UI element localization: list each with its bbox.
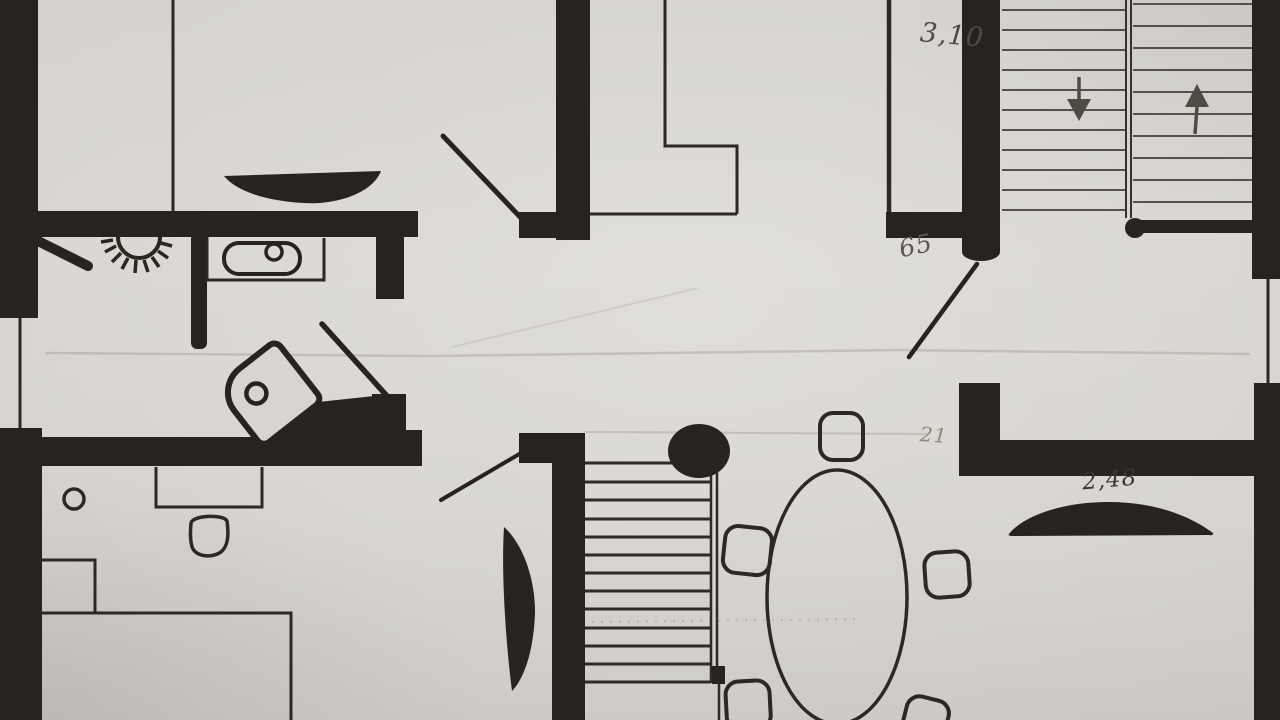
wardrobe-icon <box>503 527 535 691</box>
dimension-sideboard-length: 2,48 <box>1081 465 1138 496</box>
wall-right-lower <box>1254 383 1280 720</box>
chair-bottom-left-icon <box>725 680 771 720</box>
chair-bottom-right-icon <box>899 694 952 720</box>
chair-top-icon <box>820 413 863 460</box>
nightstand-outline <box>40 560 95 613</box>
door-swing-stairhall <box>909 264 977 357</box>
wall-stair-vertical <box>552 437 585 720</box>
pencil-line-diagonal <box>452 288 698 347</box>
wall-tub-stub <box>191 233 207 349</box>
door-swing-top-center <box>443 136 523 220</box>
wall-top-center-foot <box>519 212 559 238</box>
bathtub-icon <box>224 243 300 274</box>
washbasin-sunburst-icon <box>101 237 172 273</box>
floor-plan-drawing <box>0 0 1280 720</box>
dimension-stairwell-width: 3,10 <box>919 17 986 53</box>
wall-top-center-vertical <box>556 0 590 240</box>
wall-wc-stub <box>372 394 406 442</box>
chair-right-icon <box>924 551 971 599</box>
bedroom <box>40 467 535 720</box>
stair-treads-left-flight <box>1002 10 1125 210</box>
upper-stairwell <box>1002 0 1252 238</box>
lower-staircase <box>585 424 730 720</box>
stair-stringer-foot <box>712 666 725 684</box>
wall-corner-diagonal <box>36 240 88 266</box>
wall-right-upper <box>1252 0 1280 279</box>
arrow-down-icon <box>1067 77 1091 121</box>
pencil-line-dotted <box>592 619 862 622</box>
closet-outline <box>665 0 737 214</box>
chair-left-icon <box>722 525 774 577</box>
wall-bathroom-right-stub <box>376 237 404 299</box>
door-knob-icon <box>64 489 84 509</box>
floor-plan-page: 3,10 65 21 2,48 <box>0 0 1280 720</box>
dimension-wall-thickness: 21 <box>919 422 948 448</box>
pencil-line-horizontal-upper <box>45 350 1250 356</box>
wall-bathroom-top <box>36 211 418 237</box>
bed-outline <box>40 613 291 720</box>
stair-treads-lower <box>585 463 711 682</box>
wall-left-upper <box>0 0 38 318</box>
pencil-line-horizontal-mid <box>585 432 928 434</box>
sideboard-icon <box>1009 502 1214 536</box>
stair-newel-post-lower <box>668 424 730 478</box>
desk-outline <box>156 467 262 507</box>
dining-table-icon <box>767 470 907 720</box>
wall-left-lower <box>0 428 42 720</box>
stair-handrail <box>1140 220 1252 233</box>
desk-chair-icon <box>190 516 228 556</box>
wall-top-right-foot <box>962 243 1000 261</box>
shelf-icon <box>224 171 381 203</box>
door-swing-bedroom <box>441 453 521 500</box>
door-swing-wc <box>322 324 387 396</box>
